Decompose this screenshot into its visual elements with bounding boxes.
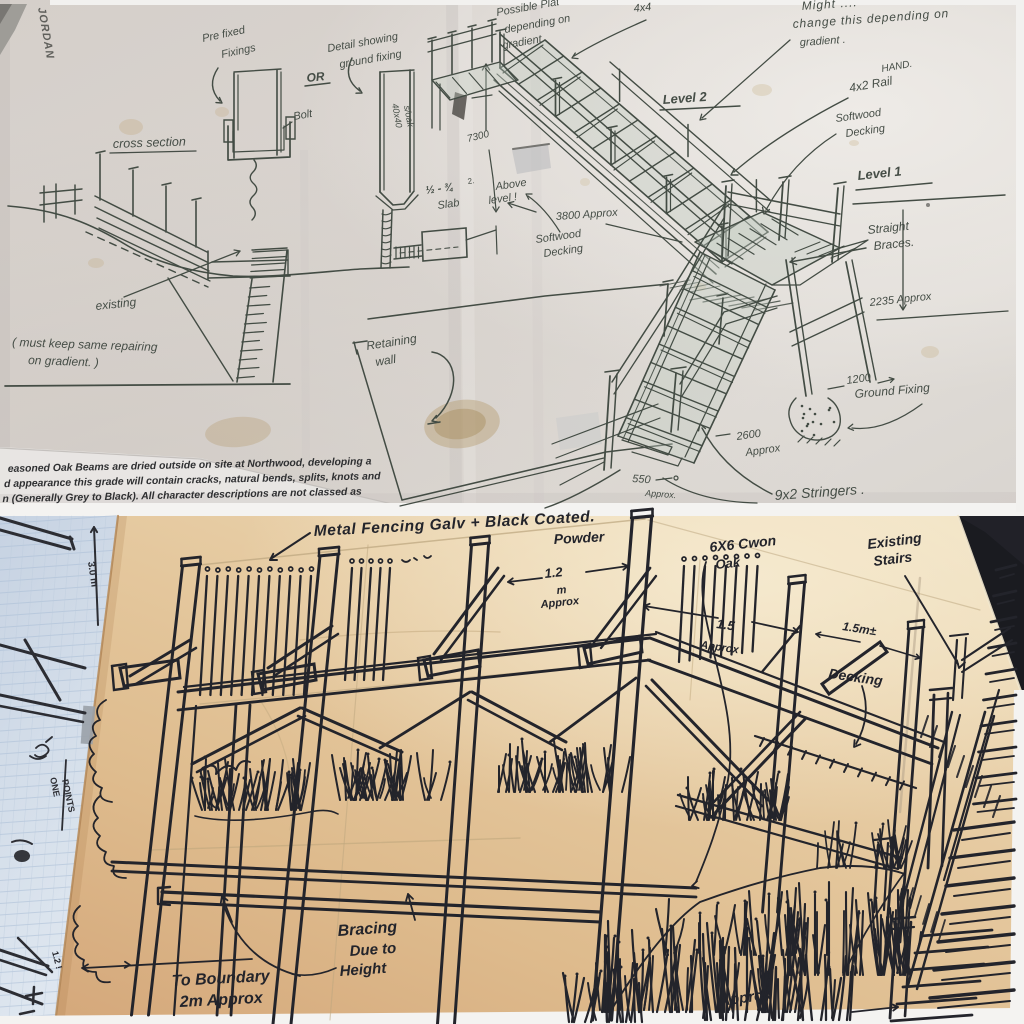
svg-text:2.: 2. (467, 176, 475, 186)
svg-text:on gradient. ): on gradient. ) (28, 353, 99, 369)
svg-text:cross section: cross section (113, 134, 186, 151)
svg-text:1.5: 1.5 (716, 616, 737, 633)
svg-text:m: m (556, 584, 567, 597)
svg-text:OR: OR (306, 69, 326, 85)
svg-text:Height: Height (339, 960, 388, 980)
svg-text:4x4: 4x4 (633, 1, 652, 15)
svg-text:Due to: Due to (349, 940, 397, 960)
svg-text:Powder: Powder (553, 528, 606, 547)
svg-text:Oak: Oak (715, 554, 742, 572)
svg-text:550: 550 (632, 473, 652, 486)
svg-text:1.2: 1.2 (544, 564, 564, 581)
svg-text:Level 2: Level 2 (662, 89, 708, 107)
